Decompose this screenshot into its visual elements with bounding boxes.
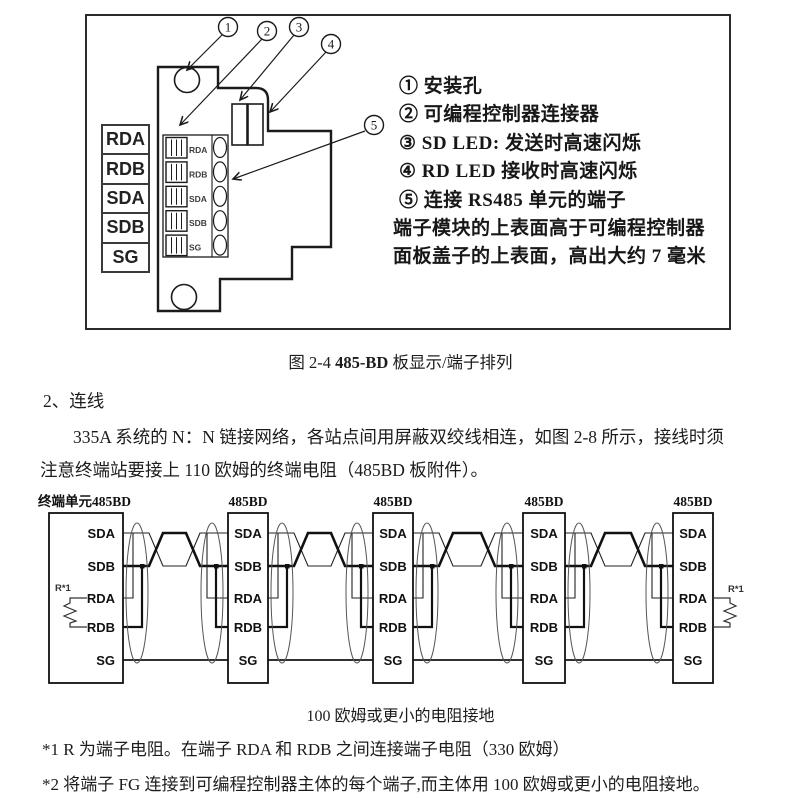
figure-caption: 图 2-4 485-BD 板显示/端子排列 [0,349,801,373]
terminal-label: RDA [530,591,559,606]
callout-number: 5 [371,118,378,133]
terminal-row: RDA [166,138,227,159]
terminal-legend: RDA RDB SDA SDB SG [101,124,150,273]
caption-suffix: 板显示/端子排列 [388,353,512,372]
unit-title: 485BD [373,494,412,509]
twisted-pair-cable [413,523,523,663]
callout-number: 3 [296,20,303,35]
unit-terminal-485bd: 终端单元485BD SDA SDB RDA RDB SG R*1 [38,493,131,683]
terminal-label: RDB [379,620,407,635]
terminal-label: SDB [379,559,406,574]
unit-485bd: 485BD SDA SDB RDA RDB SG R*1 [673,494,745,683]
section-heading: 2、连线 [43,388,104,413]
terminal-label: RDB [234,620,262,635]
shield-ellipse [416,523,438,663]
caption-bold: 485-BD [335,353,388,372]
wiring-caption: 100 欧姆或更小的电阻接地 [0,702,801,726]
terminal-label: SDA [679,526,707,541]
callout-number: 2 [264,24,271,39]
terminal-label: SG [384,653,403,668]
mounting-hole-bottom [172,285,197,310]
callout-number: 1 [225,20,232,35]
callout-4: 4 [270,35,341,113]
unit-485bd: 485BD SDA SDB RDA RDB SG [228,494,268,683]
unit-title: 485BD [524,494,563,509]
board-notes: ① 安装孔 ② 可编程控制器连接器 ③ SD LED: 发送时高速闪烁 ④ RD… [393,73,723,272]
figure-board-frame: RDA RDB SDA [85,14,731,330]
callout-5: 5 [233,116,384,180]
terminal-label: RDA [87,591,116,606]
shield-ellipse [271,523,293,663]
block-label: SDB [189,218,207,228]
shield-ellipse [646,523,668,663]
terminal-label: SG [684,653,703,668]
block-label: RDA [189,145,207,155]
wiring-diagram: 终端单元485BD SDA SDB RDA RDB SG R*1 485BD S… [30,490,771,695]
unit-title: 终端单元485BD [38,493,131,509]
sd-led [232,104,247,145]
unit-485bd: 485BD SDA SDB RDA RDB SG [523,494,565,683]
rd-led [248,104,263,145]
block-label: SDA [189,194,207,204]
legend-item: SG [103,242,148,271]
legend-item: SDB [103,212,148,241]
paragraph-line: 注意终端站要接上 110 欧姆的终端电阻（485BD 板附件）。 [40,457,488,482]
resistor-label: R*1 [55,583,72,594]
note-line: 端子模块的上表面高于可编程控制器 [393,215,723,243]
shield-ellipse [126,523,148,663]
unit-title: 485BD [673,494,712,509]
twisted-pair-cable [123,523,228,663]
note-line: ④ RD LED 接收时高速闪烁 [393,158,723,186]
unit-485bd: 485BD SDA SDB RDA RDB SG [373,494,413,683]
terminal-block: RDA RDB SDA [163,135,228,257]
terminal-label: RDA [379,591,408,606]
callout-1: 1 [187,18,238,71]
shield-ellipse [496,523,518,663]
terminal-row: RDB [166,162,227,183]
callout-number: 4 [328,37,335,52]
terminal-label: RDB [530,620,558,635]
terminal-label: SDA [234,526,262,541]
terminal-label: SDA [530,526,558,541]
note-line: ③ SD LED: 发送时高速闪烁 [393,130,723,158]
terminal-label: SG [535,653,554,668]
terminal-row: SDB [166,211,227,232]
resistor-label: R*1 [728,584,745,595]
terminal-label: RDA [234,591,263,606]
legend-item: RDB [103,153,148,182]
terminal-label: SG [239,653,258,668]
document-page: RDA RDB SDA [0,0,801,798]
terminal-label: SDB [88,559,115,574]
shield-ellipse [568,523,590,663]
legend-item: RDA [103,126,148,153]
note-line: 面板盖子的上表面，高出大约 7 毫米 [393,243,723,271]
terminal-label: SDB [679,559,706,574]
terminating-resistor-right: R*1 [713,584,745,627]
terminal-label: SG [96,653,115,668]
note-line: ② 可编程控制器连接器 [393,101,723,129]
footnote: *2 将端子 FG 连接到可编程控制器主体的每个端子,而主体用 100 欧姆或更… [42,770,710,795]
callout-3: 3 [240,18,309,101]
terminal-row: SG [166,235,227,256]
note-line: ① 安装孔 [393,73,723,101]
terminal-label: SDA [88,526,116,541]
footnote: *1 R 为端子电阻。在端子 RDA 和 RDB 之间连接端子电阻（330 欧姆… [42,735,570,760]
terminal-label: SDA [379,526,407,541]
terminal-label: SDB [234,559,261,574]
unit-title: 485BD [228,494,267,509]
shield-ellipse [201,523,223,663]
terminal-label: RDA [679,591,708,606]
twisted-pair-cable [565,523,673,663]
terminal-label: SDB [530,559,557,574]
terminal-label: RDB [679,620,707,635]
terminal-row: SDA [166,186,227,207]
terminal-label: RDB [87,620,115,635]
caption-prefix: 图 2-4 [288,353,335,372]
note-line: ⑤ 连接 RS485 单元的端子 [393,187,723,215]
block-label: RDB [189,169,207,179]
twisted-pair-cable [268,523,373,663]
shield-ellipse [346,523,368,663]
block-label: SG [189,243,202,253]
mounting-hole-top [175,68,200,93]
paragraph-line: 335A 系统的 N：N 链接网络，各站点间用屏蔽双绞线相连，如图 2-8 所示… [73,424,724,449]
legend-item: SDA [103,183,148,212]
